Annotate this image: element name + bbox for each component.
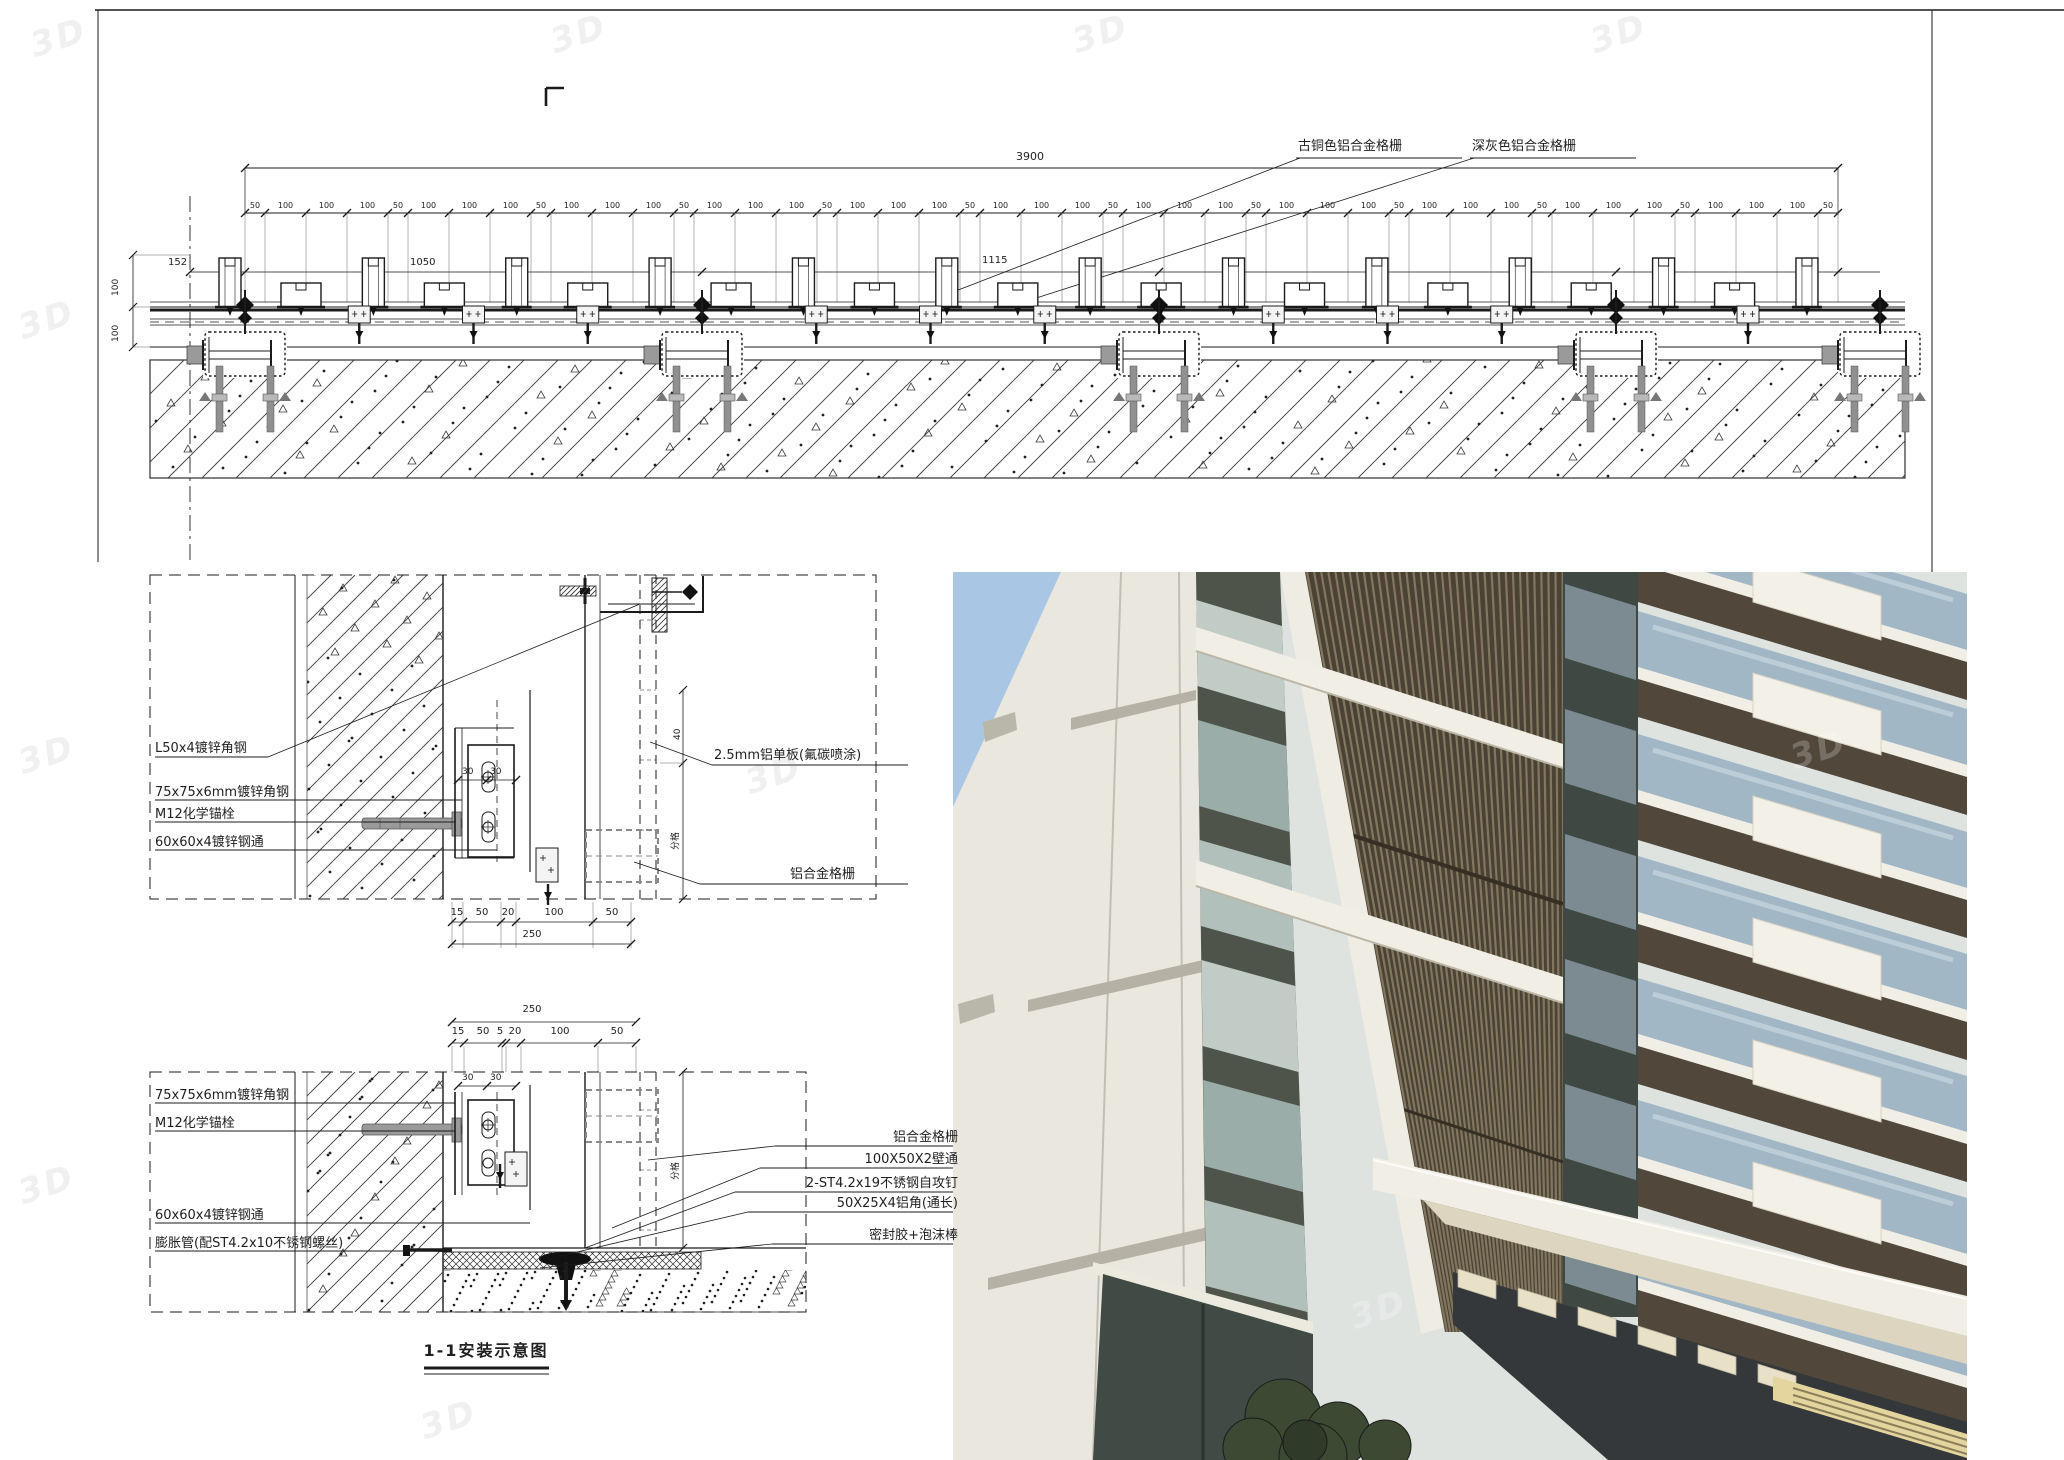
left-dim-100-a: 100 bbox=[112, 279, 122, 296]
dim-label: 50 bbox=[815, 202, 839, 211]
dt-dim: 100 bbox=[542, 907, 566, 918]
db-dim: 20 bbox=[505, 1026, 525, 1037]
dim-label: 100 bbox=[458, 202, 482, 211]
dim-152: 152 bbox=[168, 257, 187, 268]
db-label-alu-angle: 50X25X4铝角(通长) bbox=[678, 1197, 958, 1211]
dim-label: 100 bbox=[356, 202, 380, 211]
dim-label: 100 bbox=[1500, 202, 1524, 211]
dim-label: 100 bbox=[315, 202, 339, 211]
dim-label: 100 bbox=[274, 202, 298, 211]
overall-dimension: 3900 bbox=[1000, 151, 1060, 163]
dt-label-angle50: L50x4镀锌角钢 bbox=[155, 742, 247, 756]
dt-label-grille: 铝合金格栅 bbox=[790, 868, 855, 882]
dim-label: 50 bbox=[1101, 202, 1125, 211]
label-gray-grille: 深灰色铝合金格栅 bbox=[1472, 140, 1576, 154]
dim-label: 100 bbox=[1030, 202, 1054, 211]
dim-label: 100 bbox=[1316, 202, 1340, 211]
db-dim-total: 250 bbox=[516, 1004, 548, 1015]
db-dim: 100 bbox=[548, 1026, 572, 1037]
db-label-angle75: 75x75x6mm镀锌角钢 bbox=[155, 1089, 289, 1103]
dt-label-panel: 2.5mm铝单板(氟碳喷涂) bbox=[714, 749, 861, 763]
dim-label: 100 bbox=[1173, 202, 1197, 211]
facade-photo bbox=[953, 572, 1967, 1460]
dim-label: 100 bbox=[703, 202, 727, 211]
top-section-drawing bbox=[32, 10, 2064, 578]
db-label-tube100: 100X50X2壁通 bbox=[678, 1153, 958, 1167]
dt-dim: 20 bbox=[496, 907, 520, 918]
dim-label: 100 bbox=[1214, 202, 1238, 211]
dt-dim-total: 250 bbox=[516, 929, 548, 940]
db-label-expansion: 膨胀管(配ST4.2x10不锈钢螺丝) bbox=[155, 1237, 343, 1251]
dim-label: 50 bbox=[1244, 202, 1268, 211]
dim-label: 100 bbox=[1602, 202, 1626, 211]
dim-label: 100 bbox=[417, 202, 441, 211]
left-dim-100-b: 100 bbox=[112, 325, 122, 342]
dim-label: 100 bbox=[1704, 202, 1728, 211]
dim-label: 100 bbox=[887, 202, 911, 211]
dim-1050: 1050 bbox=[410, 257, 435, 268]
dim-label: 100 bbox=[1745, 202, 1769, 211]
dt-dim-30a: 30 bbox=[462, 768, 473, 778]
dim-label: 100 bbox=[642, 202, 666, 211]
detail-bottom bbox=[67, 1018, 958, 1374]
dim-label: 100 bbox=[928, 202, 952, 211]
dt-vdim-40: 40 bbox=[674, 729, 684, 740]
dt-dim: 50 bbox=[600, 907, 624, 918]
dim-label: 100 bbox=[785, 202, 809, 211]
db-label-tube: 60x60x4镀锌钢通 bbox=[155, 1209, 264, 1223]
dim-label: 100 bbox=[560, 202, 584, 211]
dim-label: 50 bbox=[1530, 202, 1554, 211]
db-dim-30b: 30 bbox=[490, 1074, 501, 1084]
dim-label: 100 bbox=[1275, 202, 1299, 211]
db-dim: 50 bbox=[605, 1026, 629, 1037]
dim-label: 100 bbox=[1459, 202, 1483, 211]
dim-label: 50 bbox=[386, 202, 410, 211]
db-label-grille: 铝合金格栅 bbox=[678, 1131, 958, 1145]
db-vdim-fenge: 分格 bbox=[672, 1162, 682, 1180]
dt-dim: 50 bbox=[470, 907, 494, 918]
db-label-anchor: M12化学锚栓 bbox=[155, 1117, 235, 1131]
dim-1115: 1115 bbox=[982, 255, 1007, 266]
db-dim: 15 bbox=[446, 1026, 470, 1037]
dim-label: 50 bbox=[243, 202, 267, 211]
dt-label-angle75: 75x75x6mm镀锌角钢 bbox=[155, 786, 289, 800]
drawing-sheet: 3900 152 1050 1115 100 100 古铜色铝合金格栅 深灰色铝… bbox=[0, 0, 2064, 1460]
dt-vdim-fenge: 分格 bbox=[672, 832, 682, 850]
dt-label-anchor: M12化学锚栓 bbox=[155, 808, 235, 822]
dim-label: 100 bbox=[1786, 202, 1810, 211]
dim-label: 100 bbox=[1643, 202, 1667, 211]
dim-label: 100 bbox=[601, 202, 625, 211]
dim-label: 100 bbox=[1418, 202, 1442, 211]
dim-label: 50 bbox=[672, 202, 696, 211]
dt-label-tube: 60x60x4镀锌钢通 bbox=[155, 836, 264, 850]
dim-label: 50 bbox=[529, 202, 553, 211]
dim-label: 50 bbox=[958, 202, 982, 211]
db-label-screws: 2-ST4.2x19不锈钢自攻钉 bbox=[678, 1177, 958, 1191]
dim-label: 100 bbox=[846, 202, 870, 211]
db-dim-30a: 30 bbox=[462, 1074, 473, 1084]
dim-label: 50 bbox=[1816, 202, 1840, 211]
dt-dim-30b: 30 bbox=[490, 768, 501, 778]
db-label-sealant: 密封胶+泡沫棒 bbox=[678, 1229, 958, 1243]
dim-label: 100 bbox=[1357, 202, 1381, 211]
label-bronze-grille: 古铜色铝合金格栅 bbox=[1298, 140, 1402, 154]
dim-label: 50 bbox=[1387, 202, 1411, 211]
dim-label: 100 bbox=[1132, 202, 1156, 211]
dt-dim: 15 bbox=[445, 907, 469, 918]
dim-label: 50 bbox=[1673, 202, 1697, 211]
dim-label: 100 bbox=[744, 202, 768, 211]
dim-label: 100 bbox=[989, 202, 1013, 211]
dim-label: 100 bbox=[1071, 202, 1095, 211]
dim-label: 100 bbox=[499, 202, 523, 211]
detail-caption: 1-1安装示意图 bbox=[400, 1342, 572, 1360]
dim-label: 100 bbox=[1561, 202, 1585, 211]
